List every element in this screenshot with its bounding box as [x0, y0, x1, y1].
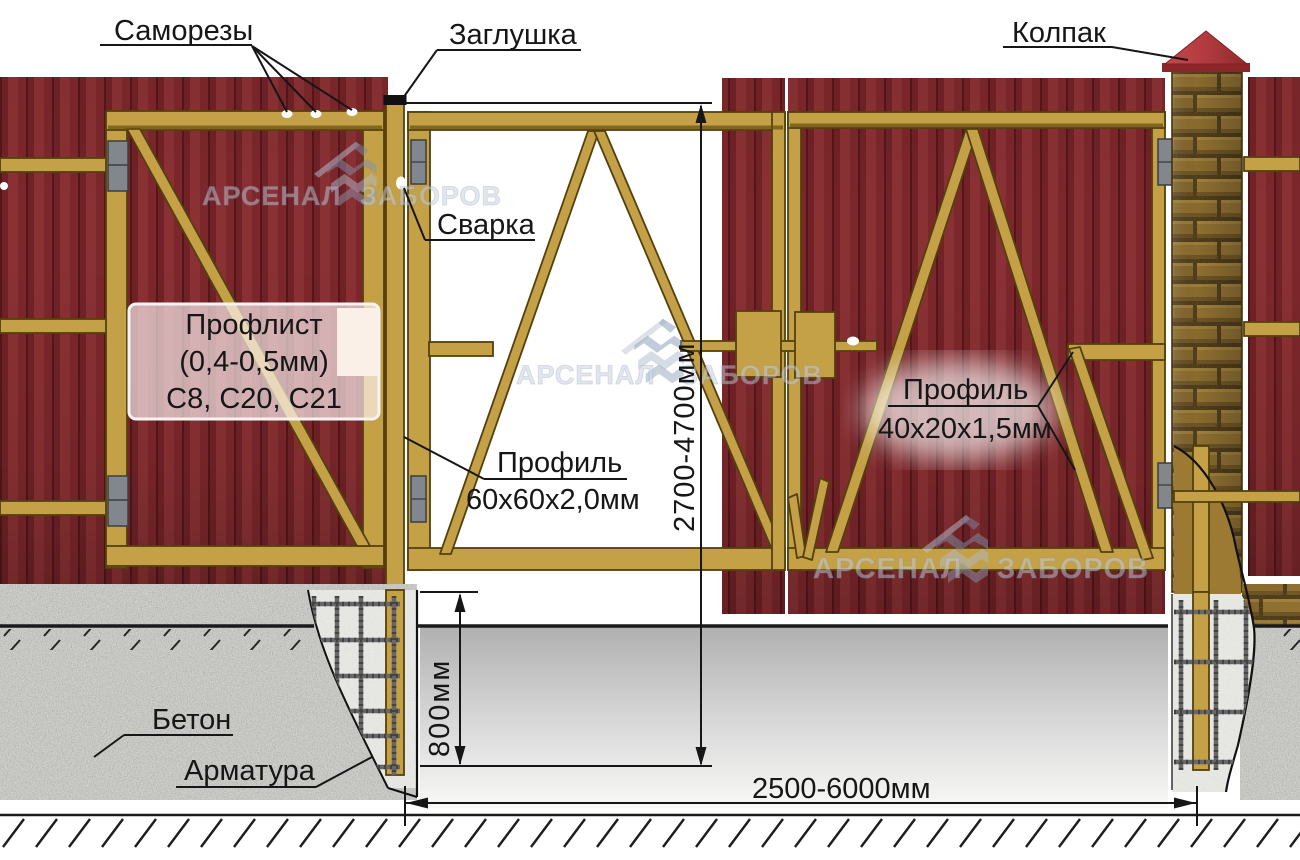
svg-text:АРСЕНАЛ: АРСЕНАЛ	[813, 553, 962, 585]
svg-text:800мм: 800мм	[424, 659, 456, 757]
svg-text:ЗАБОРОВ: ЗАБОРОВ	[997, 553, 1149, 585]
svg-text:АРСЕНАЛ: АРСЕНАЛ	[516, 360, 656, 390]
svg-text:Профиль: Профиль	[497, 447, 622, 479]
svg-text:ЗАБОРОВ: ЗАБОРОВ	[360, 181, 502, 211]
svg-text:Арматура: Арматура	[184, 755, 316, 787]
svg-text:Сварка: Сварка	[437, 209, 536, 241]
svg-text:АРСЕНАЛ: АРСЕНАЛ	[202, 181, 342, 211]
svg-text:Профиль: Профиль	[903, 374, 1028, 406]
svg-text:(0,4-0,5мм): (0,4-0,5мм)	[179, 346, 328, 378]
svg-text:40х20х1,5мм: 40х20х1,5мм	[878, 413, 1052, 445]
svg-text:ЗАБОРОВ: ЗАБОРОВ	[681, 360, 823, 390]
svg-text:2500-6000мм: 2500-6000мм	[752, 773, 931, 805]
svg-text:2700-4700мм: 2700-4700мм	[669, 342, 701, 532]
svg-text:Заглушка: Заглушка	[449, 19, 578, 51]
svg-text:60х60х2,0мм: 60х60х2,0мм	[466, 484, 640, 516]
svg-text:Колпак: Колпак	[1012, 17, 1106, 49]
svg-text:Саморезы: Саморезы	[114, 15, 253, 47]
svg-text:Профлист: Профлист	[185, 309, 322, 341]
svg-text:С8, С20, С21: С8, С20, С21	[166, 383, 342, 415]
svg-text:Бетон: Бетон	[152, 704, 231, 736]
